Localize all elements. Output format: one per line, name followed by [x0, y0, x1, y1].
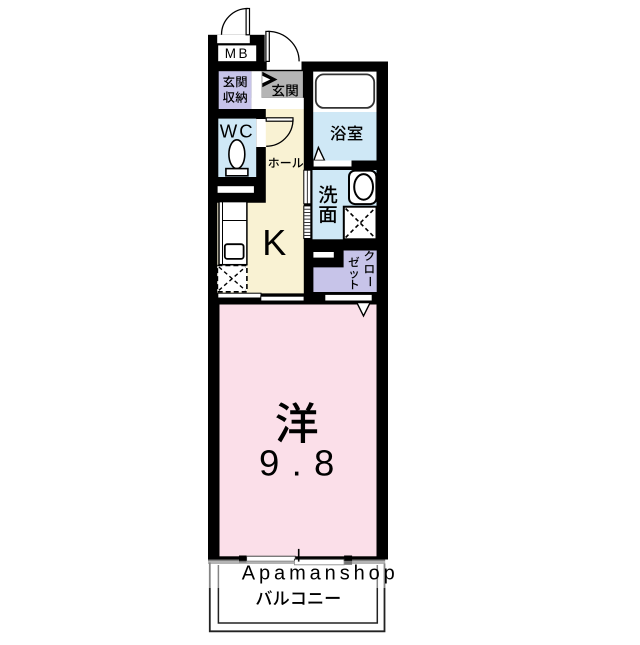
svg-text:WC: WC [220, 120, 255, 141]
svg-text:K: K [262, 222, 286, 263]
svg-text:Apamanshop: Apamanshop [242, 562, 399, 584]
svg-text:MB: MB [225, 46, 250, 61]
svg-text:9.8: 9.8 [259, 443, 347, 484]
